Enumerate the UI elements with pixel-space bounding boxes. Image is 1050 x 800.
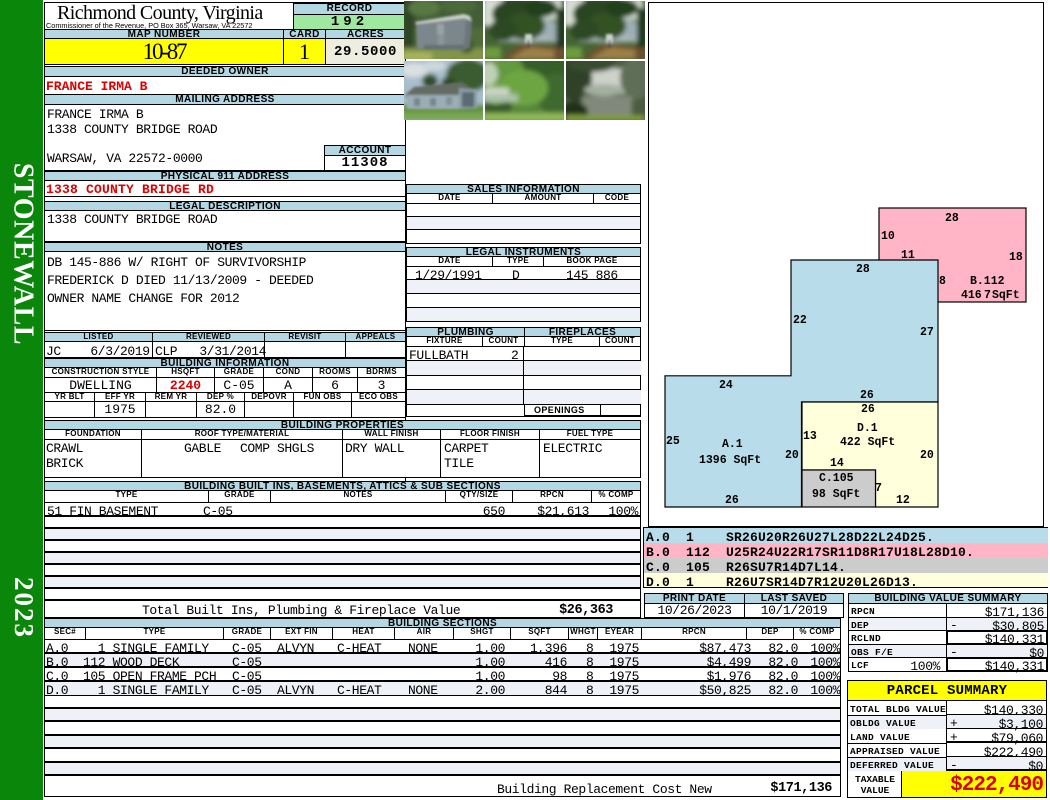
svg-text:26: 26 (860, 389, 874, 402)
svg-text:10: 10 (881, 230, 895, 243)
svg-text:7: 7 (984, 289, 991, 302)
svg-text:20: 20 (785, 449, 799, 462)
svg-text:416: 416 (961, 289, 982, 302)
svg-text:D.1: D.1 (857, 422, 878, 435)
svg-text:26: 26 (861, 403, 875, 416)
svg-text:8: 8 (939, 275, 946, 288)
svg-text:22: 22 (793, 314, 807, 327)
svg-text:11: 11 (901, 249, 915, 262)
svg-text:SqFt: SqFt (992, 289, 1020, 302)
svg-text:98 SqFt: 98 SqFt (812, 488, 860, 501)
svg-text:7: 7 (875, 482, 882, 495)
svg-text:28: 28 (856, 263, 870, 276)
svg-text:28: 28 (945, 212, 959, 225)
svg-text:B.112: B.112 (970, 275, 1005, 288)
svg-text:12: 12 (896, 494, 910, 507)
svg-text:24: 24 (719, 379, 733, 392)
svg-text:13: 13 (803, 430, 817, 443)
svg-text:422 SqFt: 422 SqFt (840, 436, 895, 449)
svg-text:1396 SqFt: 1396 SqFt (699, 454, 761, 467)
svg-text:18: 18 (1009, 251, 1023, 264)
svg-text:14: 14 (830, 457, 844, 470)
svg-text:20: 20 (920, 449, 934, 462)
svg-text:26: 26 (725, 494, 739, 507)
svg-text:A.1: A.1 (722, 438, 743, 451)
svg-text:27: 27 (920, 326, 934, 339)
svg-text:25: 25 (666, 435, 680, 448)
svg-text:C.105: C.105 (819, 472, 854, 485)
